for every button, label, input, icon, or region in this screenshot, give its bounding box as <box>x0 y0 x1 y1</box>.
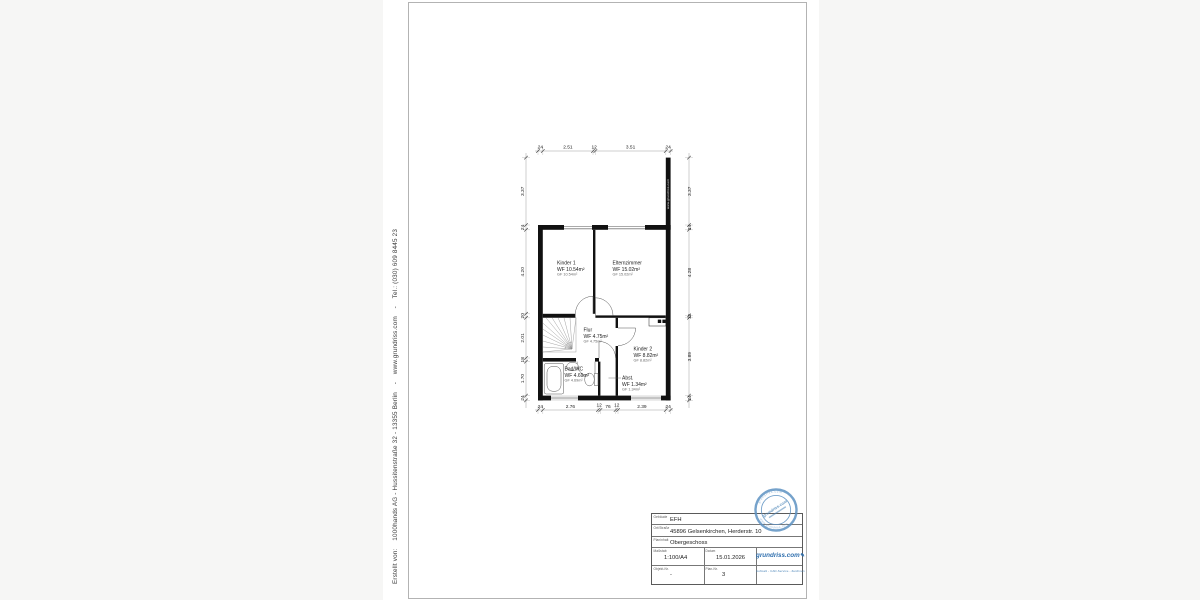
svg-text:18: 18 <box>520 357 526 363</box>
svg-text:3.37: 3.37 <box>520 186 526 196</box>
svg-text:GF 8.82m²: GF 8.82m² <box>634 359 653 363</box>
svg-text:3.37: 3.37 <box>687 186 693 196</box>
room-labels: Kinder 1 WF 10.54m² GF 10.54m² Elternzim… <box>557 261 659 392</box>
svg-text:24: 24 <box>538 145 544 151</box>
svg-text:2.76: 2.76 <box>566 404 576 410</box>
field-value: - <box>670 572 672 578</box>
logo-text: grundriss.com <box>756 552 800 559</box>
svg-text:20: 20 <box>520 313 526 319</box>
svg-text:12: 12 <box>614 403 620 409</box>
wall-top <box>538 225 671 230</box>
svg-text:3.51: 3.51 <box>626 145 636 151</box>
wall-kinder2-left-top <box>616 318 618 328</box>
svg-text:2.51: 2.51 <box>563 145 573 151</box>
svg-text:76: 76 <box>605 404 611 410</box>
svg-text:GF 10.54m²: GF 10.54m² <box>557 273 578 277</box>
door-elternzimmer <box>595 298 613 316</box>
plan-sheet-page: www.grundriss.com Kinder 1 WF 10.54m² GF… <box>408 2 807 599</box>
room-label-abstellraum: Abst. WF 1.34m² GF 1.34m² <box>609 376 648 392</box>
wall-kinder1-eltern-divider <box>593 230 595 314</box>
wall-watermark-text: www.grundriss.com <box>666 179 670 209</box>
bathtub-inner <box>547 366 561 391</box>
svg-text:12: 12 <box>597 403 603 409</box>
svg-text:24: 24 <box>520 224 526 230</box>
drawing-canvas: Erstellt von: 1000hands AG - Hussitenstr… <box>0 0 1200 600</box>
door-kinder2 <box>618 328 636 346</box>
svg-text:Kinder 1: Kinder 1 <box>557 261 576 267</box>
window-elternzimmer <box>608 225 645 230</box>
svg-text:GF 1.34m²: GF 1.34m² <box>622 388 641 392</box>
svg-text:GF 4.75m²: GF 4.75m² <box>584 340 603 344</box>
room-label-flur: Flur WF 4.75m² GF 4.75m² <box>584 328 609 344</box>
titleblock-field-plan-nr: Plan-Nr. 3 <box>704 566 756 584</box>
field-label: Ort/Straße <box>654 526 670 530</box>
svg-text:12: 12 <box>687 314 693 320</box>
dim-left: 3.37 24 4.20 20 2.01 18 1.70 24 <box>520 153 530 408</box>
svg-text:4.20: 4.20 <box>520 267 526 277</box>
wall-under-kinder1 <box>543 314 576 318</box>
titleblock-field-massstab: Maßstab 1:100/A4 <box>652 548 704 565</box>
chimney-symbol <box>649 318 666 326</box>
author-margin-note: Erstellt von: 1000hands AG - Hussitenstr… <box>389 256 403 584</box>
door-abstellraum <box>599 341 616 358</box>
svg-text:Flur: Flur <box>584 328 593 334</box>
stamp-center-logo: grundriss.com <box>761 498 789 520</box>
svg-text:GF 15.02m²: GF 15.02m² <box>613 273 634 277</box>
svg-text:4.28: 4.28 <box>687 268 693 278</box>
field-value: 15.01.2026 <box>716 555 745 561</box>
grundriss-logo-tagline: Aufmaß - CAD-Service - Zeichnen <box>756 569 802 573</box>
svg-text:12: 12 <box>592 145 598 151</box>
wall-flur-bottom <box>543 358 576 362</box>
svg-text:24: 24 <box>538 404 544 410</box>
wall-left <box>538 225 543 400</box>
field-label: Plan-Nr. <box>706 567 718 571</box>
room-label-kinder1: Kinder 1 WF 10.54m² GF 10.54m² <box>557 261 585 277</box>
svg-text:Elternzimmer: Elternzimmer <box>613 261 643 267</box>
svg-text:2.39: 2.39 <box>637 404 647 410</box>
window-badwc <box>551 396 578 401</box>
field-label: Gebäude <box>654 515 668 519</box>
window-kinder2 <box>631 396 661 401</box>
room-label-kinder2: Kinder 2 WF 8.82m² GF 8.82m² <box>634 347 659 363</box>
staircase <box>543 318 576 352</box>
field-value: 45896 Gelsenkirchen, Herderstr. 10 <box>670 529 762 535</box>
svg-text:24: 24 <box>687 224 693 230</box>
field-label: Planinhalt <box>654 538 669 542</box>
svg-text:1.70: 1.70 <box>520 374 526 384</box>
dim-bottom: 24 2.76 12 76 12 2.39 24 <box>535 403 673 415</box>
dim-top: 24 2.51 12 3.51 24 <box>535 145 673 155</box>
wall-bad-right <box>598 362 600 396</box>
svg-text:3.89: 3.89 <box>687 352 693 362</box>
field-value: 1:100/A4 <box>664 555 687 561</box>
room-label-elternzimmer: Elternzimmer WF 15.02m² GF 15.02m² <box>613 261 643 277</box>
field-value: Obergeschoss <box>670 540 707 546</box>
field-value: EFH <box>670 517 682 523</box>
dim-right: 3.37 24 4.28 12 3.89 24 <box>685 153 693 408</box>
grundriss-logo: grundriss.com✎ Aufmaß - CAD-Service - Ze… <box>756 548 802 584</box>
svg-text:24: 24 <box>666 404 672 410</box>
wall-flur-stub <box>595 358 599 362</box>
svg-text:24: 24 <box>666 145 672 151</box>
svg-text:Bad/WC: Bad/WC <box>565 367 584 373</box>
svg-text:GF 4.69m²: GF 4.69m² <box>565 379 584 383</box>
wall-under-elternzimmer <box>595 315 665 317</box>
titleblock-field-objekt-nr: Objekt-Nr. - <box>652 566 704 584</box>
svg-text:2.01: 2.01 <box>520 333 526 343</box>
window-kinder1 <box>564 225 592 230</box>
svg-text:24: 24 <box>520 395 526 401</box>
grundriss-logo-wordmark: grundriss.com✎ <box>756 552 802 559</box>
svg-text:Abst.: Abst. <box>622 376 633 382</box>
pen-icon: ✎ <box>799 553 805 560</box>
svg-text:Kinder 2: Kinder 2 <box>634 347 653 353</box>
field-label: Objekt-Nr. <box>654 567 669 571</box>
toilet-tank <box>594 374 598 386</box>
door-kinder1 <box>575 296 593 314</box>
field-label: Maßstab <box>654 549 667 553</box>
wall-kinder2-left-bottom <box>616 346 618 396</box>
wall-right <box>666 225 671 400</box>
titleblock-field-datum: Datum 15.01.2026 <box>704 548 756 565</box>
field-value: 3 <box>722 572 725 578</box>
field-label: Datum <box>706 549 716 553</box>
company-stamp: grundriss.com www.grundriss.com grundris… <box>753 487 799 533</box>
svg-text:24: 24 <box>687 395 693 401</box>
floorplan-drawing: www.grundriss.com Kinder 1 WF 10.54m² GF… <box>516 141 694 415</box>
titleblock-field-planinhalt: Planinhalt Obergeschoss <box>652 537 802 547</box>
